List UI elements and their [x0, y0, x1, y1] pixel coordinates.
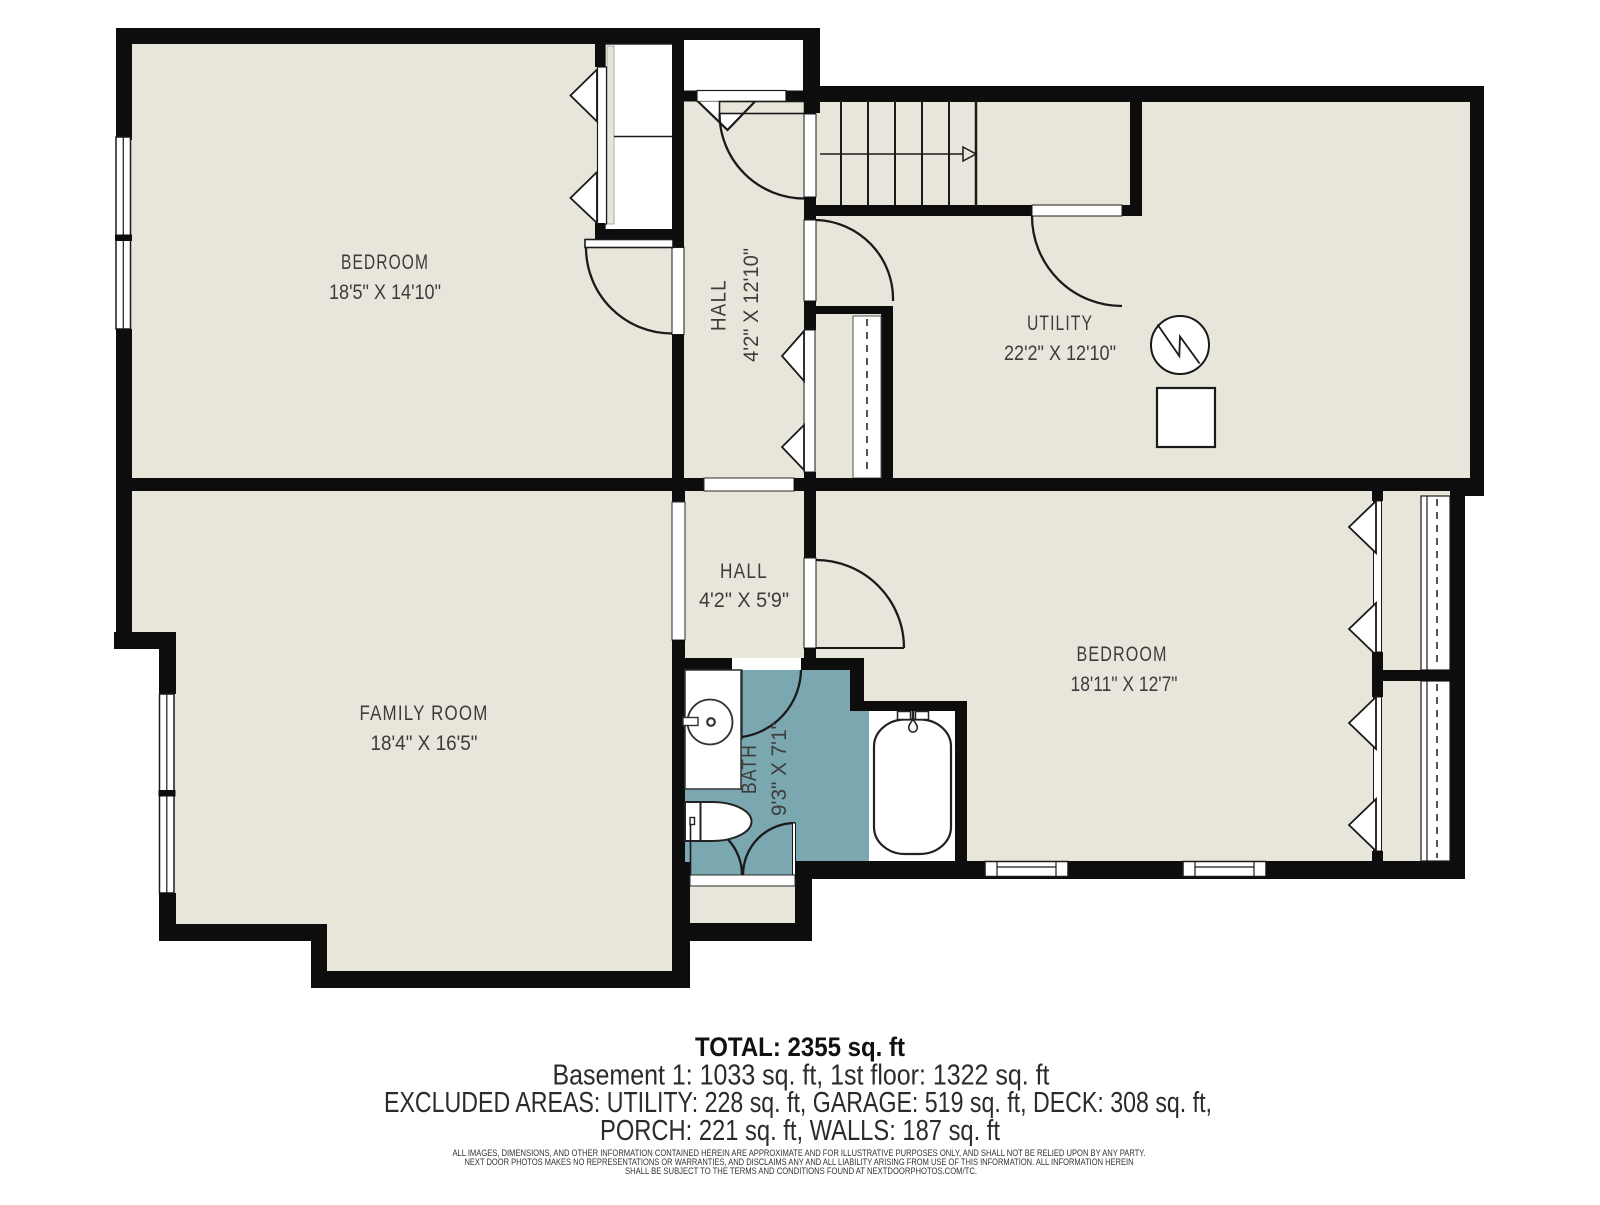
svg-text:22'2" X 12'10": 22'2" X 12'10"	[1004, 341, 1116, 365]
svg-text:HALL: HALL	[707, 279, 731, 331]
svg-text:BATH: BATH	[737, 744, 761, 794]
svg-text:4'2" X 12'10": 4'2" X 12'10"	[739, 248, 763, 362]
svg-text:BEDROOM: BEDROOM	[1077, 642, 1168, 666]
svg-text:HALL: HALL	[720, 559, 768, 583]
svg-text:TOTAL: 2355 sq. ft: TOTAL: 2355 sq. ft	[695, 1032, 905, 1062]
svg-text:18'5" X 14'10": 18'5" X 14'10"	[329, 280, 441, 304]
svg-text:FAMILY ROOM: FAMILY ROOM	[360, 701, 489, 725]
svg-text:18'4" X 16'5": 18'4" X 16'5"	[371, 731, 478, 755]
svg-text:4'2" X 5'9": 4'2" X 5'9"	[699, 588, 789, 612]
svg-text:9'3" X 7'1": 9'3" X 7'1"	[767, 722, 791, 816]
svg-text:BEDROOM: BEDROOM	[341, 250, 429, 274]
svg-text:PORCH: 221 sq. ft, WALLS: 187: PORCH: 221 sq. ft, WALLS: 187 sq. ft	[600, 1115, 1000, 1147]
svg-text:SHALL BE SUBJECT TO THE TERMS: SHALL BE SUBJECT TO THE TERMS AND CONDIT…	[625, 1166, 977, 1176]
svg-text:UTILITY: UTILITY	[1027, 311, 1093, 335]
svg-text:18'11" X 12'7": 18'11" X 12'7"	[1071, 672, 1178, 696]
